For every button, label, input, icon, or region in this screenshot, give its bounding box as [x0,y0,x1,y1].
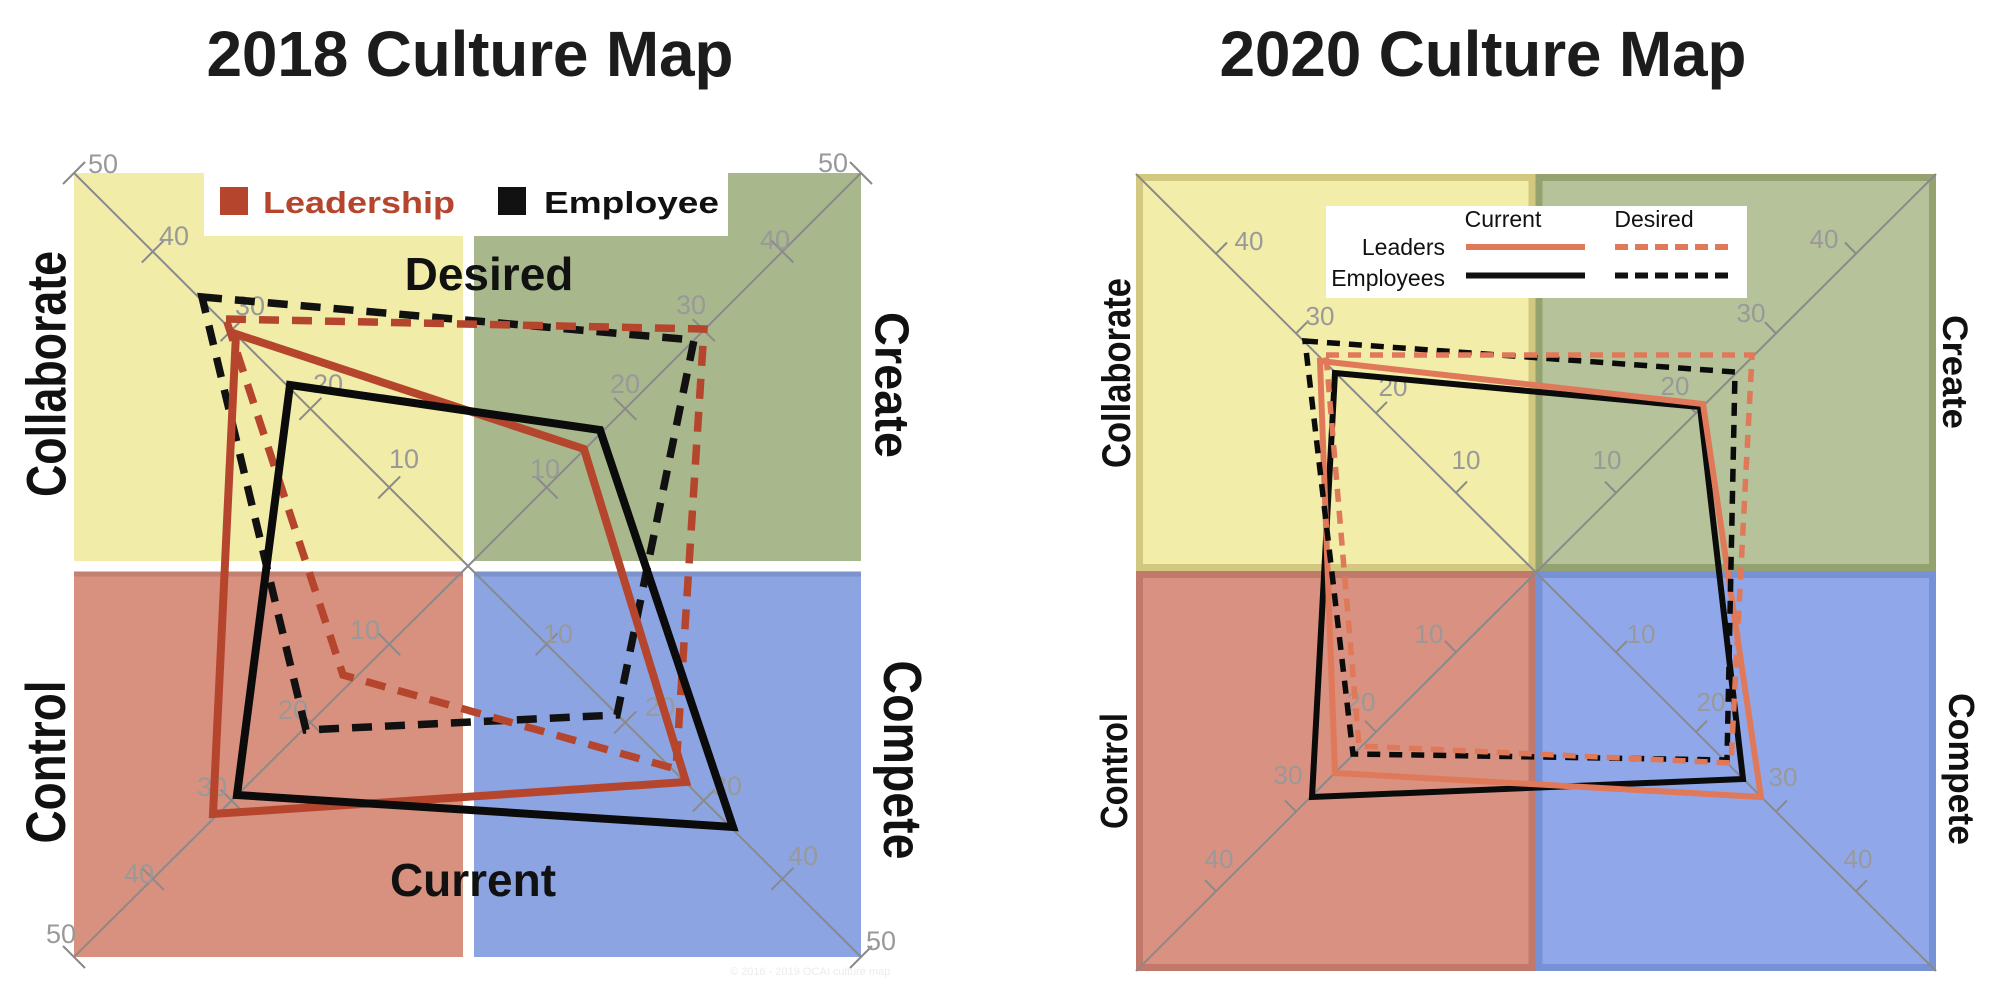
svg-text:40: 40 [124,859,154,889]
svg-text:30: 30 [676,290,706,320]
svg-text:Leadership: Leadership [263,185,455,220]
svg-text:Current: Current [1465,206,1542,232]
svg-text:Compete: Compete [872,661,932,860]
svg-text:50: 50 [866,926,896,956]
svg-text:Leaders: Leaders [1362,234,1445,260]
svg-text:40: 40 [788,841,818,871]
svg-text:Employees: Employees [1331,265,1445,291]
svg-text:Current: Current [390,854,556,906]
svg-text:Desired: Desired [1614,206,1693,232]
svg-text:Compete: Compete [1941,693,1982,845]
svg-text:20: 20 [1661,371,1690,401]
svg-text:10: 10 [1627,619,1656,649]
svg-text:Collaborate: Collaborate [1095,278,1139,468]
svg-text:30: 30 [1769,762,1798,792]
svg-text:40: 40 [159,221,189,251]
svg-text:50: 50 [88,149,118,179]
svg-text:10: 10 [1415,619,1444,649]
svg-text:Desired: Desired [405,248,574,300]
svg-text:2018 Culture Map: 2018 Culture Map [207,18,734,90]
svg-text:Control: Control [1094,713,1136,829]
svg-text:Create: Create [1935,315,1974,429]
svg-text:10: 10 [1593,445,1622,475]
svg-text:40: 40 [760,225,790,255]
svg-text:Control: Control [14,681,77,844]
svg-text:© 2016 - 2019 OCAI culture map: © 2016 - 2019 OCAI culture map [730,966,890,978]
svg-text:30: 30 [1737,298,1766,328]
svg-text:10: 10 [530,454,560,484]
svg-text:10: 10 [389,444,419,474]
svg-text:Collaborate: Collaborate [15,251,78,497]
svg-text:40: 40 [1235,226,1264,256]
svg-text:10: 10 [1452,445,1481,475]
svg-text:50: 50 [46,919,76,949]
svg-text:40: 40 [1844,844,1873,874]
svg-text:30: 30 [1274,760,1303,790]
svg-text:10: 10 [350,615,380,645]
svg-text:10: 10 [543,619,573,649]
svg-text:40: 40 [1205,844,1234,874]
svg-text:20: 20 [610,369,640,399]
svg-text:20: 20 [1697,687,1726,717]
svg-text:50: 50 [818,148,848,178]
svg-text:30: 30 [1306,301,1335,331]
svg-text:2020 Culture Map: 2020 Culture Map [1220,18,1747,90]
svg-text:40: 40 [1810,224,1839,254]
svg-text:Create: Create [865,312,918,458]
svg-text:Employee: Employee [544,185,719,220]
